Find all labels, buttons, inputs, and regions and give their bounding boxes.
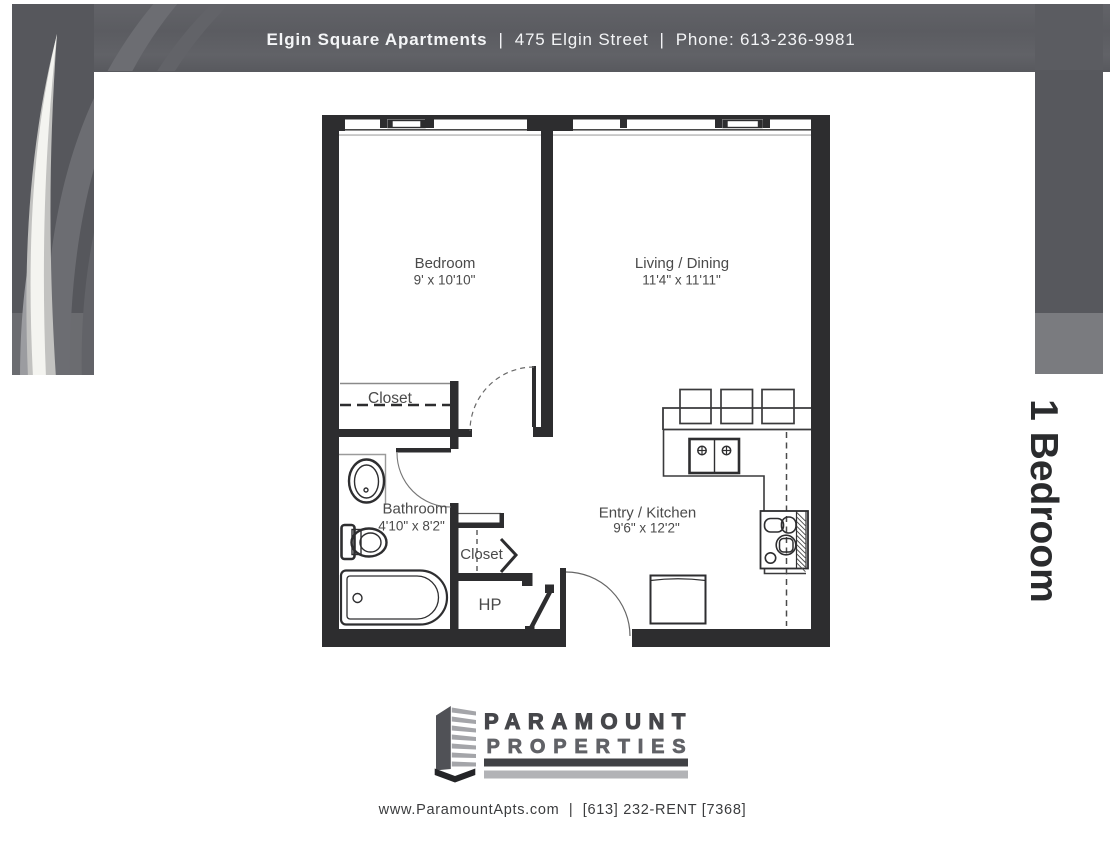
svg-text:Closet: Closet (368, 390, 413, 407)
svg-text:Closet: Closet (460, 546, 503, 563)
svg-text:11'4" x 11'11": 11'4" x 11'11" (642, 273, 721, 288)
svg-text:Bedroom: Bedroom (415, 255, 476, 272)
svg-text:4'10" x 8'2": 4'10" x 8'2" (378, 519, 445, 534)
svg-text:9' x 10'10": 9' x 10'10" (414, 273, 476, 288)
svg-text:9'6" x 12'2": 9'6" x 12'2" (613, 521, 680, 536)
svg-text:HP: HP (479, 596, 502, 614)
svg-text:PROPERTIES: PROPERTIES (487, 736, 694, 758)
svg-text:Bathroom: Bathroom (382, 501, 447, 518)
svg-text:PARAMOUNT: PARAMOUNT (484, 709, 693, 734)
svg-text:Entry / Kitchen: Entry / Kitchen (599, 505, 697, 522)
svg-text:Living / Dining: Living / Dining (635, 255, 729, 272)
